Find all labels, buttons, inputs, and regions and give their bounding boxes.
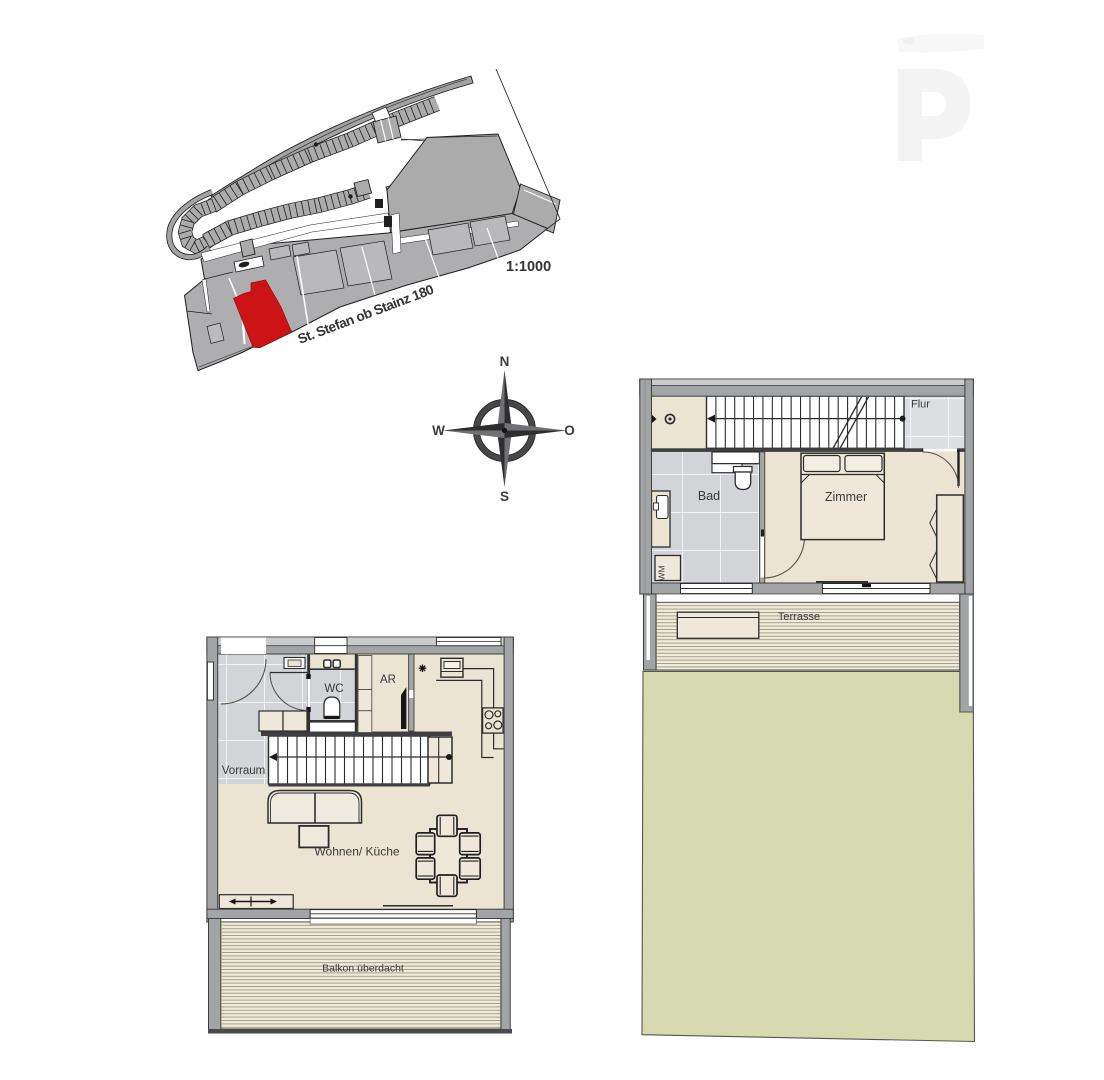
svg-text:Zimmer: Zimmer bbox=[825, 490, 867, 504]
svg-text:W: W bbox=[432, 423, 445, 438]
svg-text:Terrasse: Terrasse bbox=[778, 611, 820, 623]
svg-text:Balkon überdacht: Balkon überdacht bbox=[322, 963, 404, 975]
svg-text:Bad: Bad bbox=[698, 489, 720, 503]
svg-text:Wohnen/ Küche: Wohnen/ Küche bbox=[314, 845, 399, 859]
svg-text:WM: WM bbox=[657, 565, 667, 580]
svg-text:Vorraum: Vorraum bbox=[222, 765, 265, 777]
svg-text:N: N bbox=[500, 354, 510, 369]
svg-text:WC: WC bbox=[324, 683, 343, 695]
svg-text:AR: AR bbox=[380, 674, 396, 686]
svg-text:1:1000: 1:1000 bbox=[506, 259, 551, 275]
svg-text:O: O bbox=[564, 423, 575, 438]
svg-text:Flur: Flur bbox=[911, 399, 930, 411]
svg-text:S: S bbox=[500, 489, 509, 504]
